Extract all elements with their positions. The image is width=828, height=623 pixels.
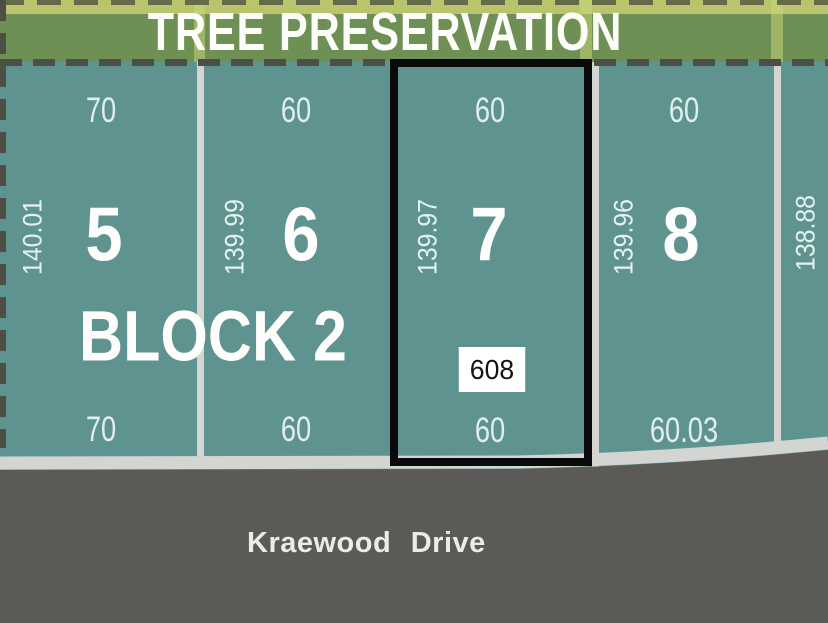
tree-preservation-label: TREE PRESERVATION [148,1,622,63]
lot-6-depth-dimension: 139.99 [220,199,251,275]
lot-6-bottom-dimension: 60 [281,410,311,450]
left-boundary-dashed-line [0,0,6,448]
lot-8-depth-dimension: 139.96 [609,199,640,275]
lot-8-bottom-dimension: 60.03 [650,411,718,451]
lot-5-number: 5 [85,192,122,279]
lot-divider-5-6 [197,62,204,468]
lot-divider-8-edge [774,62,781,448]
lot-5-top-dimension: 70 [86,91,116,131]
lot-7-top-dimension: 60 [475,91,505,131]
plat-map: TREE PRESERVATION 70 140.01 5 70 60 139.… [0,0,828,623]
lot-6-top-dimension: 60 [281,91,311,131]
block-label: BLOCK 2 [79,297,347,378]
right-boundary-depth: 138.88 [791,195,822,271]
lot-5-bottom-dimension: 70 [86,410,116,450]
lot-7-number: 7 [470,192,507,279]
street-name-label: Kraewood Drive [247,527,486,560]
lot-7-parcel-tag: 608 [459,347,526,392]
lot-7-bottom-dimension: 60 [475,411,505,451]
lot-6-number: 6 [282,192,319,279]
parcel-tag-text: 608 [470,354,514,386]
lot-5-depth-dimension: 140.01 [18,199,49,275]
band-stripe [771,0,783,62]
lot-8-top-dimension: 60 [669,91,699,131]
lot-divider-7-8 [592,62,599,468]
lot-7-depth-dimension: 139.97 [413,199,444,275]
lot-8-number: 8 [662,192,699,279]
